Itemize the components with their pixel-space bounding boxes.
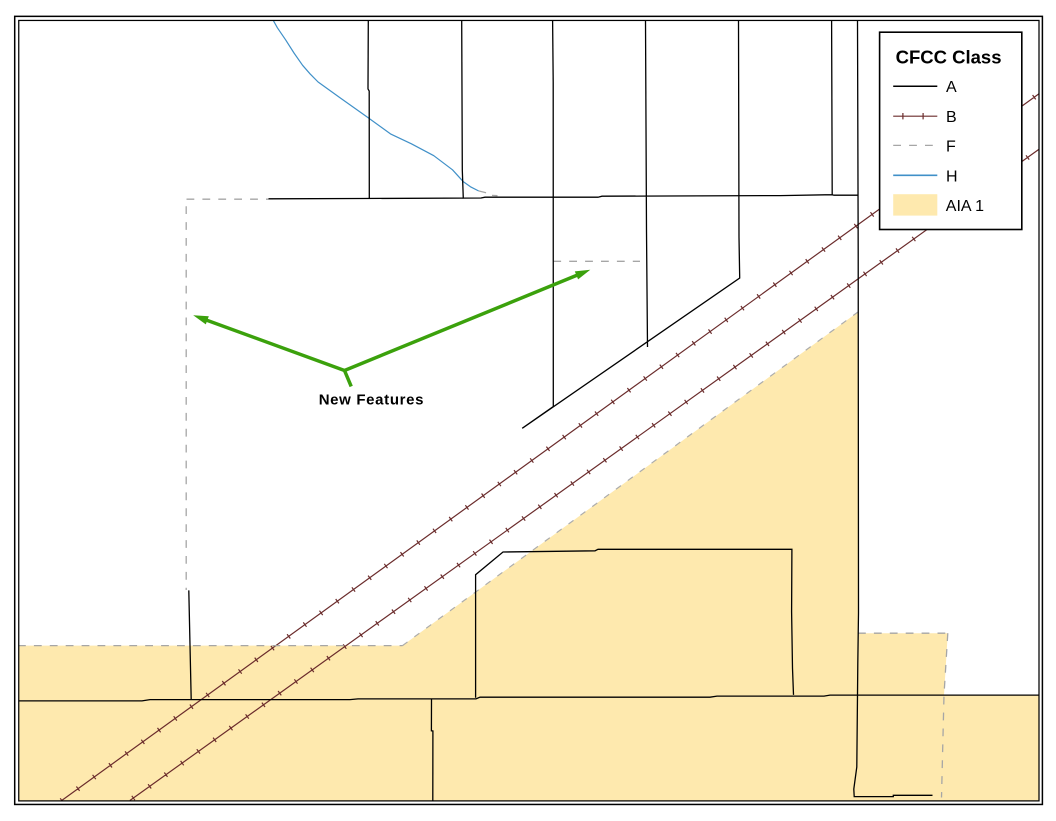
svg-text:A: A [946, 79, 957, 96]
svg-text:F: F [946, 138, 956, 155]
svg-text:H: H [946, 168, 958, 185]
svg-text:New Features: New Features [319, 391, 424, 408]
svg-text:AIA 1: AIA 1 [946, 198, 984, 215]
svg-text:CFCC Class: CFCC Class [896, 47, 1002, 68]
svg-text:B: B [946, 109, 957, 126]
